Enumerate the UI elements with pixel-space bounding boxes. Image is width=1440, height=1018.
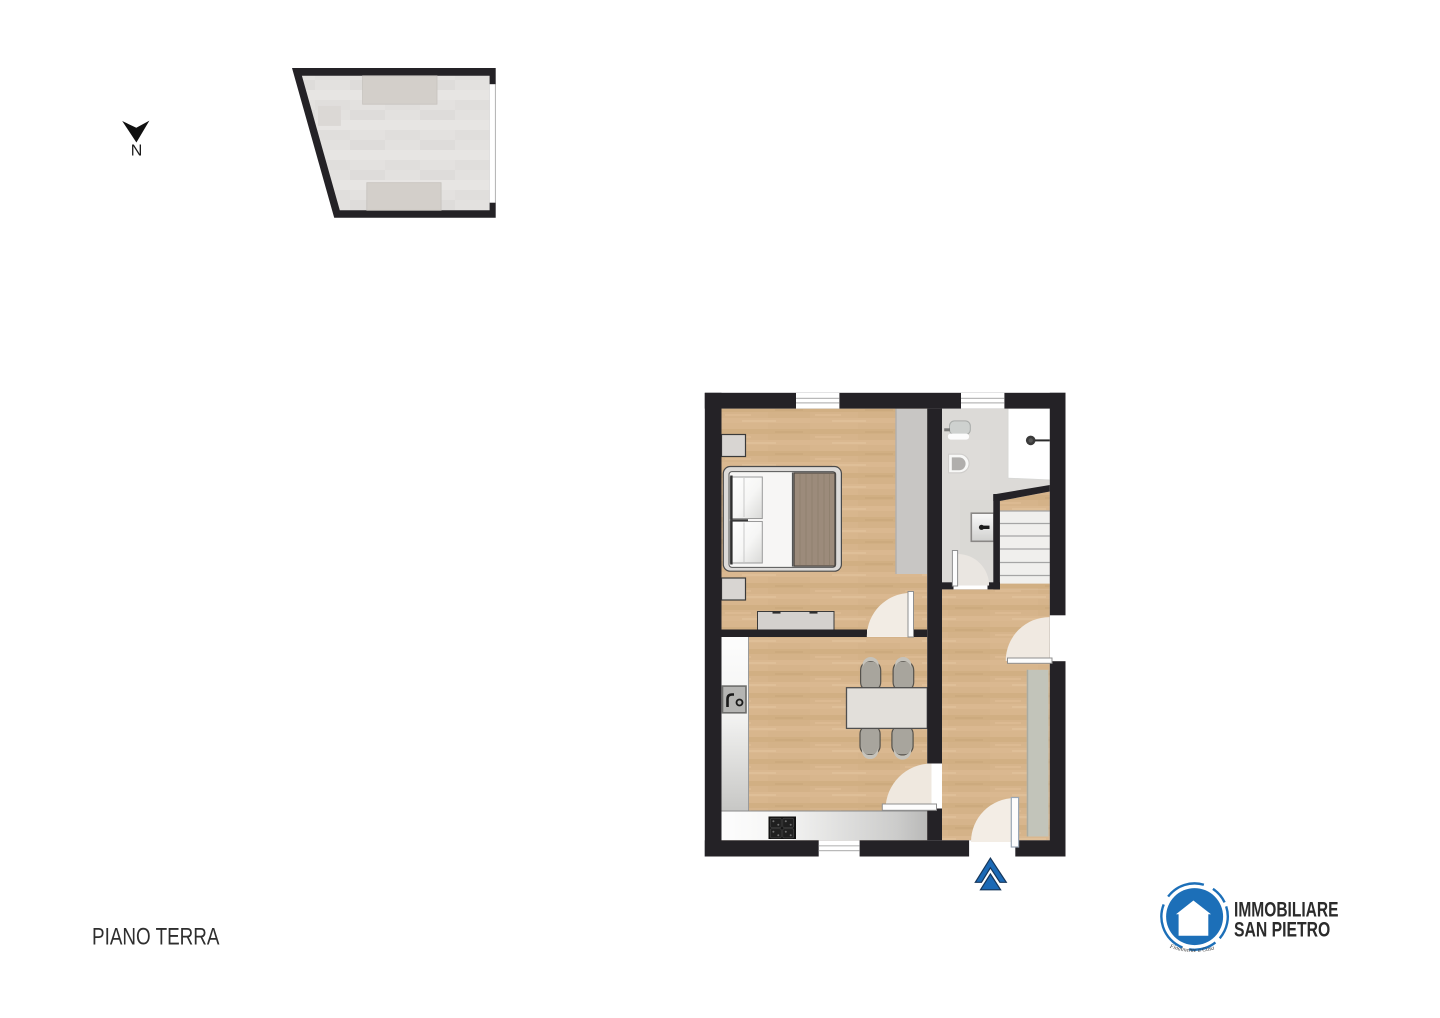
svg-text:PIANO TERRA: PIANO TERRA — [92, 924, 220, 951]
svg-text:N: N — [131, 143, 143, 160]
svg-text:SAN PIETRO: SAN PIETRO — [1234, 918, 1330, 941]
